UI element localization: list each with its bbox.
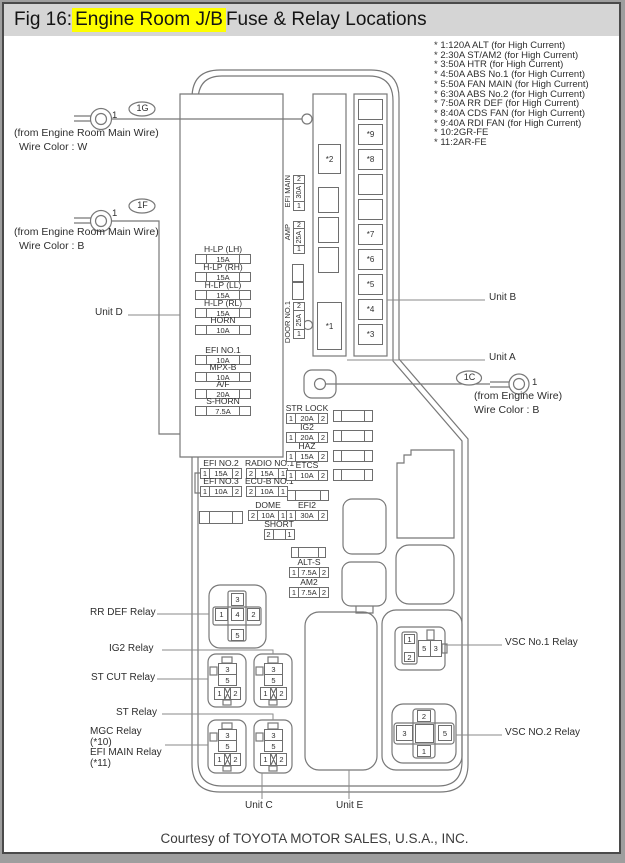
vsc2-pin-5: 5: [438, 725, 452, 741]
fuse-ecu-b-no1: ECU-B NO.1 210A1: [245, 477, 289, 497]
rr-def-pin-2: 2: [247, 608, 260, 621]
connector-1c-wire-color: Wire Color : B: [474, 404, 539, 418]
rr-def-pin-5: 5: [231, 629, 244, 641]
relay-pin: 2: [230, 753, 241, 766]
unit-b-label: Unit B: [489, 293, 516, 304]
figure-window: Fig 16: Engine Room J/B Fuse & Relay Loc…: [2, 2, 621, 854]
empty-fuse: [333, 469, 373, 481]
relay-pin: 2: [276, 687, 287, 700]
figure-stage: Fig 16: Engine Room J/B Fuse & Relay Loc…: [2, 2, 621, 854]
st-cut-relay-label: ST CUT Relay: [91, 673, 155, 684]
vsc2-pin-3: 3: [396, 725, 413, 741]
connector-1g-caption: (from Engine Room Main Wire): [14, 127, 159, 141]
empty-fuse: [333, 430, 373, 442]
empty-slot: [292, 282, 304, 300]
relay-pin: 2: [230, 687, 241, 700]
connector-1f-wire-color: Wire Color : B: [19, 240, 84, 254]
fuse-haz: HAZ 115A2: [285, 442, 329, 462]
vsc2-relay-label: VSC NO.2 Relay: [505, 728, 580, 739]
fuse-am2: AM2 17.5A2: [289, 578, 329, 598]
fuse-dome: DOME 210A1: [247, 501, 289, 521]
mgc-efi-main-relay-label: MGC Relay (*10) EFI MAIN Relay (*11): [90, 727, 162, 769]
connector-1c-caption: (from Engine Wire): [474, 390, 562, 404]
connector-1g-pin: 1: [112, 110, 117, 121]
fuse-efi-main: 2 30A 1: [293, 175, 305, 211]
vsc1-pin-2: 2: [404, 652, 415, 662]
fuse-etcs: ETCS 110A2: [285, 461, 329, 481]
unit-c-label: Unit C: [245, 801, 273, 812]
rr-def-pin-3: 3: [231, 593, 244, 606]
fuse-alt-s: ALT-S 17.5A2: [289, 558, 329, 578]
empty-slot: [358, 99, 383, 120]
vsc1-body: 53: [418, 640, 442, 657]
empty-fuse: [333, 450, 373, 462]
empty-slot: [318, 187, 339, 213]
slot-star2: *2: [318, 144, 341, 174]
slot-star1: *1: [317, 302, 342, 350]
empty-slot: [318, 247, 339, 273]
vsc1-pin-1: 1: [404, 634, 415, 644]
fuse-s-horn: S-HORN 7.5A: [194, 397, 252, 416]
empty-fuse: [333, 410, 373, 422]
connector-1g-wire-color: Wire Color : W: [19, 141, 87, 155]
connector-1f-pin: 1: [112, 208, 117, 219]
fuse-efi-no3: EFI NO.3 110A2: [199, 477, 243, 497]
fuse-horn: HORN 10A: [194, 316, 252, 335]
empty-slot: [358, 199, 383, 220]
empty-fuse: [287, 490, 329, 501]
vsc2-center-cavity: [415, 724, 434, 743]
connector-1c-pin: 1: [532, 377, 537, 388]
st-relay-body: 35: [264, 729, 283, 752]
slot-star9: *9: [358, 124, 383, 145]
courtesy-note: Courtesy of TOYOTA MOTOR SALES, U.S.A., …: [2, 831, 621, 846]
empty-slot: [318, 217, 339, 243]
relay-pin: 2: [276, 753, 287, 766]
rr-def-relay-label: RR DEF Relay: [90, 608, 156, 619]
empty-fuse: [199, 511, 243, 524]
slot-star6: *6: [358, 249, 383, 270]
empty-fuse: [291, 547, 326, 558]
fuse-ig2: IG2 120A2: [285, 423, 329, 443]
slot-star3: *3: [358, 324, 383, 345]
connector-1g-tag: 1G: [129, 103, 156, 113]
fuse-efi-main-label: EFI MAIN: [283, 175, 292, 208]
fuse-str-lock: STR LOCK 120A2: [285, 404, 329, 424]
empty-slot: [292, 264, 304, 282]
slot-star7: *7: [358, 224, 383, 245]
slot-star4: *4: [358, 299, 383, 320]
connector-1c-tag: 1C: [456, 372, 483, 382]
rr-def-pin-4: 4: [231, 608, 244, 621]
ig2-relay-body: 35: [264, 663, 283, 686]
slot-star5: *5: [358, 274, 383, 295]
fuse-short: SHORT 21: [260, 520, 298, 540]
fuse-door-no1-label: DOOR NO.1: [283, 301, 292, 343]
unit-e-block: [305, 612, 377, 770]
vsc2-pin-2: 2: [417, 710, 431, 722]
fuse-door-no1: 2 25A 1: [293, 302, 305, 339]
slot-star8: *8: [358, 149, 383, 170]
fuse-efi2: EFI2 130A2: [285, 501, 329, 521]
vsc2-pin-1: 1: [417, 745, 431, 757]
rr-def-pin-1: 1: [215, 608, 228, 621]
unit-d-label: Unit D: [95, 308, 123, 319]
note-line: * 11:2AR-FE: [434, 138, 589, 148]
high-current-note-list: * 1:120A ALT (for High Current) * 2:30A …: [434, 41, 589, 148]
st-cut-relay-body: 35: [218, 663, 237, 686]
empty-slot: [358, 174, 383, 195]
connector-1f-tag: 1F: [129, 200, 156, 210]
ig2-relay-label: IG2 Relay: [109, 644, 153, 655]
mgc-efi-main-relay-body: 35: [218, 729, 237, 752]
connector-1f-caption: (from Engine Room Main Wire): [14, 226, 159, 240]
vsc1-relay-label: VSC No.1 Relay: [505, 638, 578, 649]
fuse-amp-label: AMP: [283, 224, 292, 240]
unit-a-label: Unit A: [489, 353, 516, 364]
fuse-amp: 2 25A 1: [293, 221, 305, 254]
st-relay-label: ST Relay: [116, 708, 157, 719]
unit-e-label: Unit E: [336, 801, 363, 812]
